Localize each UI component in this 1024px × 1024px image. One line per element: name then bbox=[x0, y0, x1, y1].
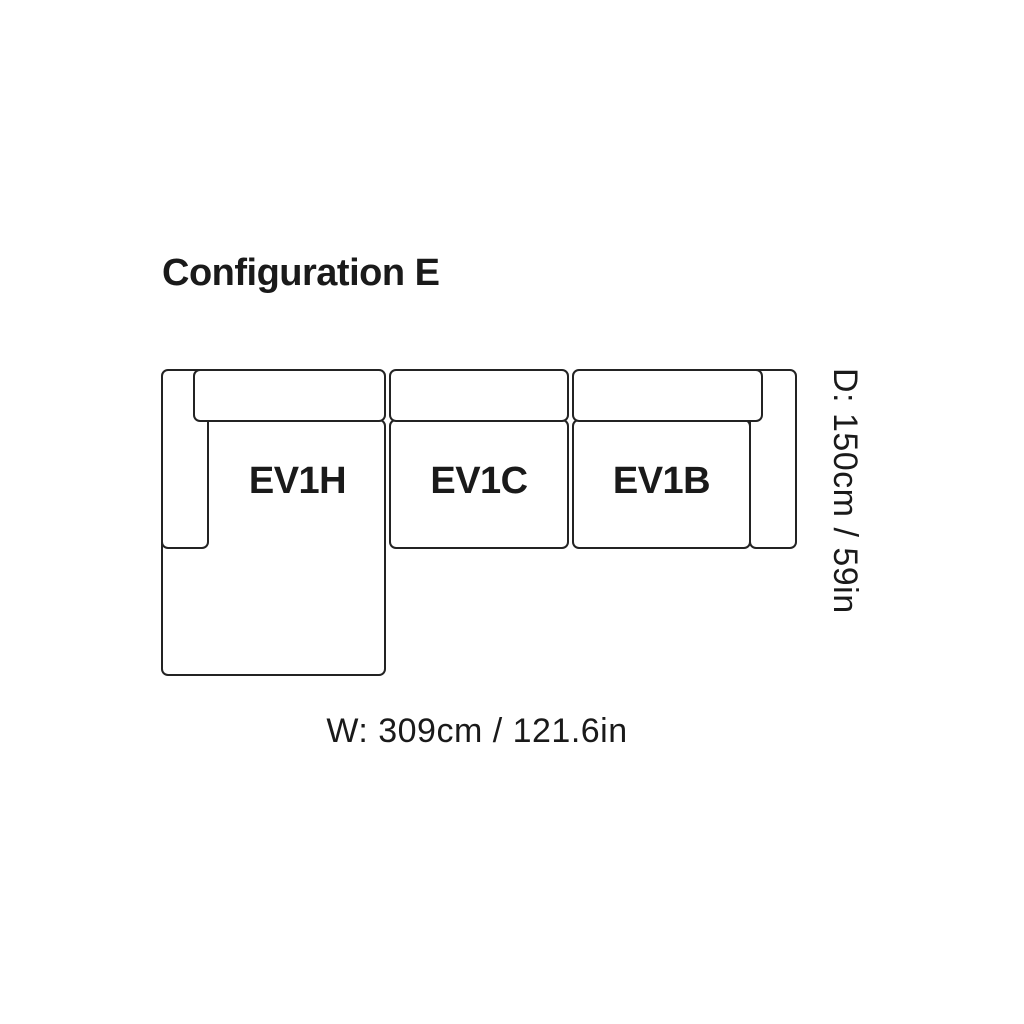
module-ev1h-backrest bbox=[193, 369, 386, 422]
module-ev1b-label: EV1B bbox=[572, 459, 751, 503]
module-ev1c-backrest bbox=[389, 369, 569, 422]
module-ev1c-label: EV1C bbox=[389, 459, 569, 503]
module-ev1b-backrest bbox=[572, 369, 763, 422]
configuration-diagram-page: Configuration E EV1H EV1C EV1B D: 150cm … bbox=[0, 0, 1024, 1024]
depth-dimension-label: D: 150cm / 59in bbox=[820, 368, 864, 618]
width-dimension-label: W: 309cm / 121.6in bbox=[237, 712, 717, 751]
page-title: Configuration E bbox=[162, 252, 439, 295]
module-ev1h-label: EV1H bbox=[209, 459, 386, 503]
